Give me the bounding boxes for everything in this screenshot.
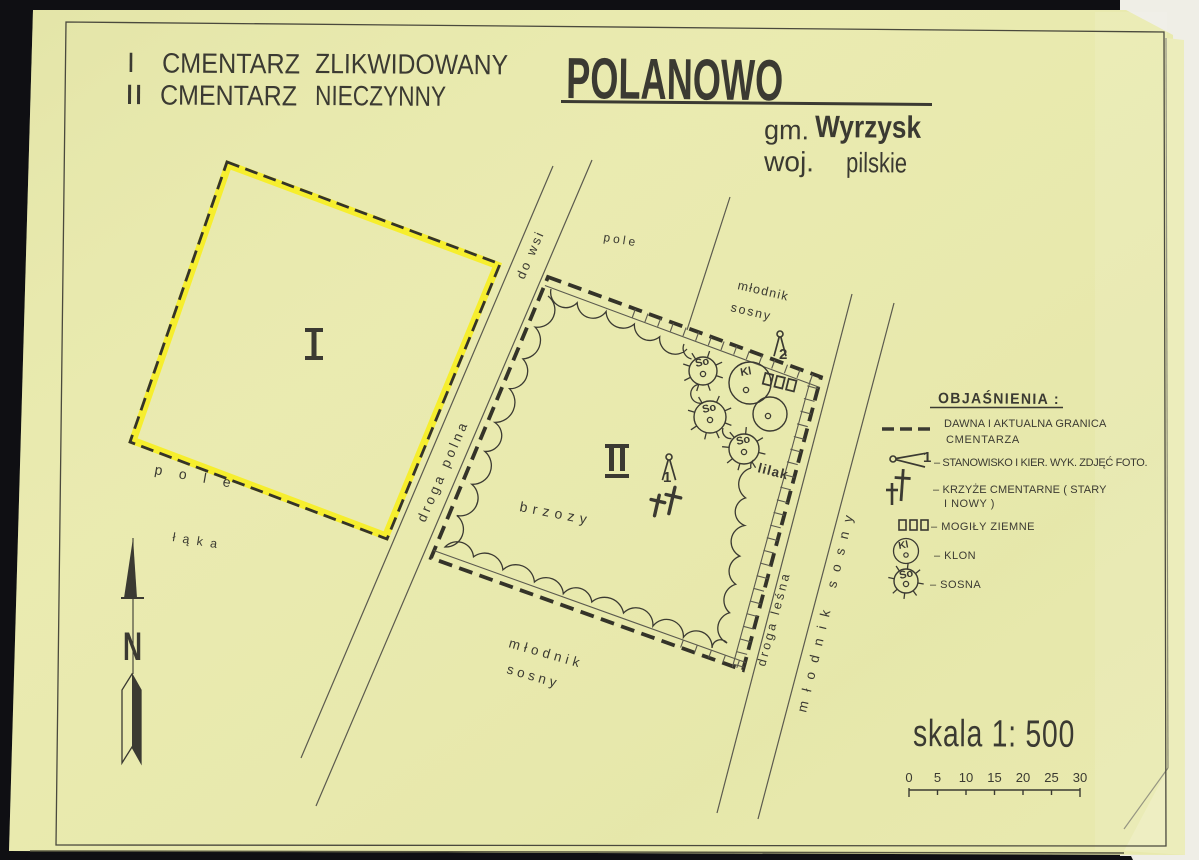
- svg-text:– KLON: – KLON: [934, 550, 976, 562]
- svg-text:II: II: [125, 79, 143, 110]
- svg-text:15: 15: [987, 770, 1001, 785]
- svg-text:2: 2: [779, 346, 787, 363]
- svg-text:skala 1: 500: skala 1: 500: [913, 713, 1075, 756]
- svg-text:20: 20: [1016, 770, 1030, 785]
- svg-text:25: 25: [1044, 770, 1058, 785]
- svg-text:10: 10: [959, 770, 973, 785]
- svg-text:Wyrzysk: Wyrzysk: [815, 109, 922, 145]
- svg-text:N: N: [123, 625, 142, 669]
- svg-text:NIECZYNNY: NIECZYNNY: [315, 80, 446, 112]
- svg-text:– MOGIŁY ZIEMNE: – MOGIŁY ZIEMNE: [931, 521, 1035, 533]
- svg-text:DAWNA I AKTUALNA GRANICA: DAWNA I AKTUALNA GRANICA: [944, 418, 1107, 430]
- svg-text:5: 5: [934, 770, 941, 785]
- svg-text:0: 0: [905, 770, 912, 785]
- svg-text:ZLIKWIDOWANY: ZLIKWIDOWANY: [315, 48, 508, 80]
- svg-text:– KRZYŻE CMENTARNE ( STARY: – KRZYŻE CMENTARNE ( STARY: [933, 483, 1107, 496]
- svg-text:– STANOWISKO I KIER. WYK. ZDJĘ: – STANOWISKO I KIER. WYK. ZDJĘĆ FOTO.: [934, 456, 1148, 469]
- svg-text:OBJAŚNIENIA :: OBJAŚNIENIA :: [938, 389, 1060, 408]
- svg-text:1: 1: [923, 449, 931, 466]
- svg-text:CMENTARZ: CMENTARZ: [162, 48, 300, 80]
- svg-text:1: 1: [663, 469, 671, 486]
- svg-text:Kl: Kl: [739, 365, 752, 379]
- svg-text:gm.: gm.: [764, 115, 809, 145]
- svg-text:CMENTARZ: CMENTARZ: [160, 80, 297, 112]
- svg-text:CMENTARZA: CMENTARZA: [946, 434, 1020, 446]
- svg-text:woj.: woj.: [763, 146, 814, 177]
- svg-text:pilskie: pilskie: [846, 147, 907, 179]
- svg-text:I: I: [127, 47, 135, 78]
- svg-text:30: 30: [1073, 770, 1087, 785]
- svg-text:I NOWY ): I NOWY ): [944, 498, 995, 510]
- svg-text:– SOSNA: – SOSNA: [930, 579, 981, 591]
